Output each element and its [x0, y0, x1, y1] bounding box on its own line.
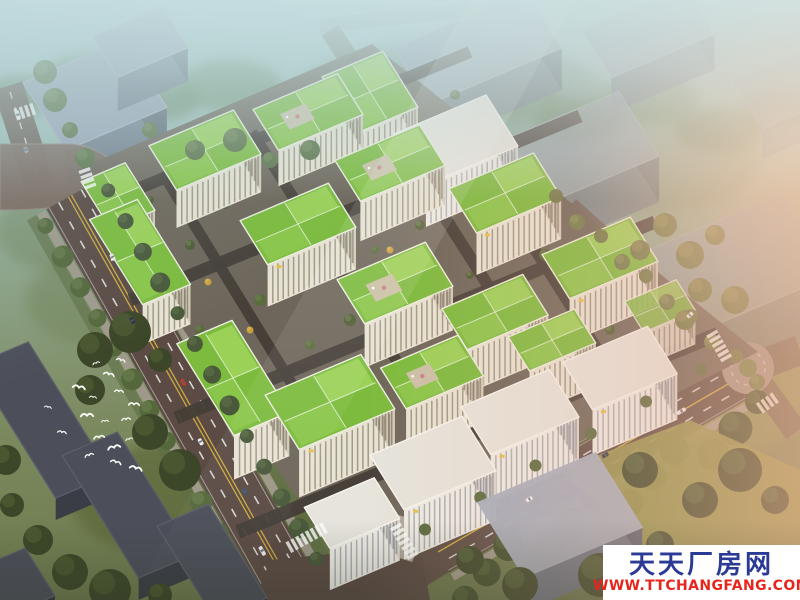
watermark: 天天厂房网 WWW.TTCHANGFANG.COM	[603, 545, 800, 600]
watermark-site-name: 天天厂房网	[629, 552, 774, 578]
aerial-site-render: 天天厂房网 WWW.TTCHANGFANG.COM	[0, 0, 800, 600]
watermark-url: WWW.TTCHANGFANG.COM	[593, 579, 800, 593]
rendered-scene	[0, 0, 800, 600]
